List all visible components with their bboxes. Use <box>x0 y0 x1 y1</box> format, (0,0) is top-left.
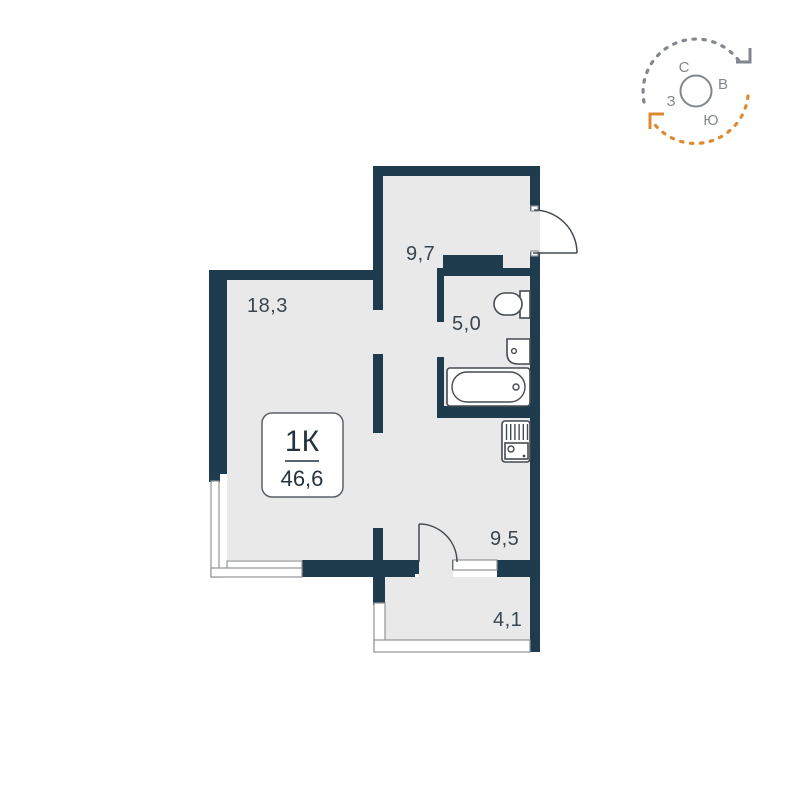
bathroom-door-threshold <box>437 322 444 357</box>
wall <box>373 166 383 310</box>
wall <box>530 252 540 652</box>
wall <box>209 270 227 474</box>
wall <box>373 577 385 605</box>
floor-plan-canvas: 18,3 9,7 5,0 9,5 4,1 1К 46,6 С В З Ю <box>0 0 787 787</box>
compass-south-label: Ю <box>703 112 718 129</box>
bathroom-area-label: 5,0 <box>452 313 481 335</box>
wall <box>209 270 383 280</box>
apartment-type-label: 1К <box>285 425 320 458</box>
wall <box>497 560 530 577</box>
apartment-badge: 1К 46,6 <box>262 413 343 497</box>
balcony-glazing <box>374 603 385 645</box>
wall <box>437 268 444 322</box>
door-jamb <box>415 560 419 574</box>
wall <box>373 166 540 176</box>
compass-north-label: С <box>679 59 690 76</box>
kitchen-fixtures <box>502 421 530 462</box>
toilet-icon <box>494 293 522 315</box>
wall <box>373 354 383 433</box>
kitchen-area-label: 9,5 <box>490 528 519 550</box>
balcony-area-label: 4,1 <box>493 609 522 631</box>
corner-glazing <box>211 481 219 577</box>
sink-icon <box>507 339 530 364</box>
apartment-area-label: 46,6 <box>281 466 324 491</box>
kitchen-sink-drain-icon <box>523 455 526 458</box>
hallway-area-label: 9,7 <box>406 243 435 265</box>
compass-circle <box>681 76 712 107</box>
compass: С В З Ю <box>643 39 750 143</box>
entrance-threshold <box>530 211 540 252</box>
wall <box>302 560 415 577</box>
floor-plan-page: 18,3 9,7 5,0 9,5 4,1 1К 46,6 С В З Ю <box>0 0 787 787</box>
wall <box>437 268 530 276</box>
window <box>453 560 497 570</box>
wall <box>437 406 530 418</box>
compass-west-label: З <box>666 93 675 110</box>
balcony-glazing <box>374 640 530 652</box>
compass-east-label: В <box>718 76 728 93</box>
corridor-floor <box>383 268 437 418</box>
wall <box>530 166 540 211</box>
corner-glazing <box>211 568 302 577</box>
living-room-area-label: 18,3 <box>247 295 288 317</box>
balcony-door-threshold <box>419 560 453 577</box>
entrance-door-arc <box>534 210 577 253</box>
